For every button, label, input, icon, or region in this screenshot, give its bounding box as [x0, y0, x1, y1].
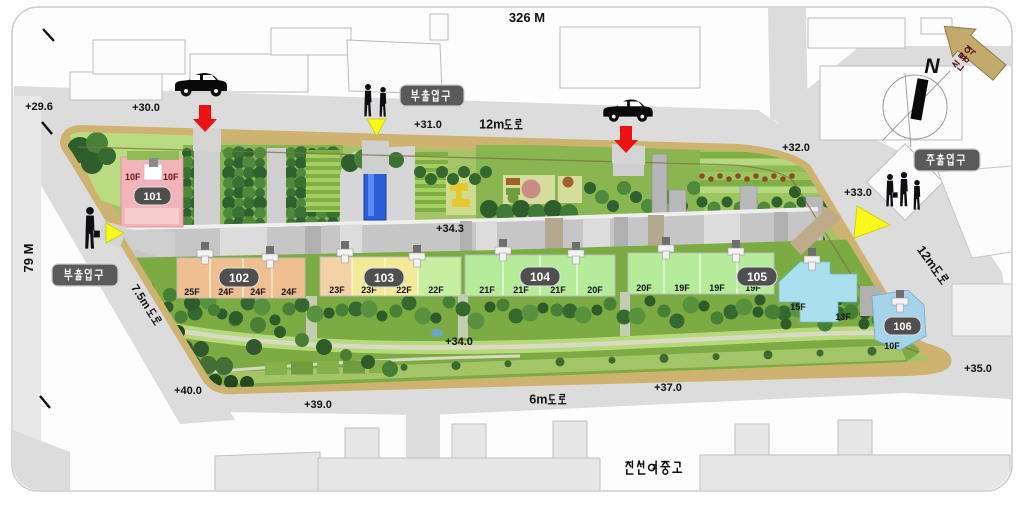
svg-text:326 M: 326 M — [509, 10, 545, 25]
svg-text:+31.0: +31.0 — [414, 119, 442, 131]
svg-text:+39.0: +39.0 — [304, 399, 332, 411]
svg-text:12m: 12m — [479, 118, 504, 132]
svg-text:+34.3: +34.3 — [436, 223, 464, 235]
svg-text:22F: 22F — [428, 285, 444, 295]
svg-text:+33.0: +33.0 — [844, 187, 872, 199]
svg-text:104: 104 — [530, 270, 550, 284]
svg-text:101: 101 — [143, 191, 161, 203]
svg-text:10F: 10F — [884, 341, 900, 351]
svg-text:19F: 19F — [709, 283, 725, 293]
svg-text:24F: 24F — [281, 287, 297, 297]
svg-text:103: 103 — [374, 271, 394, 285]
svg-text:20F: 20F — [636, 283, 652, 293]
svg-text:21F: 21F — [513, 285, 529, 295]
svg-text:+34.0: +34.0 — [445, 336, 473, 348]
svg-text:+30.0: +30.0 — [132, 102, 160, 114]
svg-text:24F: 24F — [218, 287, 234, 297]
svg-text:6m: 6m — [529, 393, 547, 407]
svg-text:+40.0: +40.0 — [174, 385, 202, 397]
svg-text:20F: 20F — [587, 285, 603, 295]
svg-text:102: 102 — [229, 271, 249, 285]
svg-text:+35.0: +35.0 — [964, 363, 992, 375]
svg-text:19F: 19F — [674, 283, 690, 293]
svg-text:10F: 10F — [125, 172, 141, 182]
svg-text:25F: 25F — [184, 287, 200, 297]
svg-text:21F: 21F — [550, 285, 566, 295]
svg-text:10F: 10F — [163, 172, 179, 182]
svg-text:13F: 13F — [835, 312, 851, 322]
svg-text:24F: 24F — [250, 287, 266, 297]
svg-text:+32.0: +32.0 — [782, 142, 810, 154]
svg-text:21F: 21F — [479, 285, 495, 295]
svg-text:79 M: 79 M — [21, 244, 36, 273]
svg-text:105: 105 — [747, 270, 767, 284]
svg-text:106: 106 — [893, 321, 911, 333]
svg-text:15F: 15F — [790, 302, 806, 312]
svg-text:+37.0: +37.0 — [654, 382, 682, 394]
svg-text:N: N — [924, 55, 940, 78]
svg-text:23F: 23F — [329, 285, 345, 295]
svg-text:+29.6: +29.6 — [25, 101, 53, 113]
